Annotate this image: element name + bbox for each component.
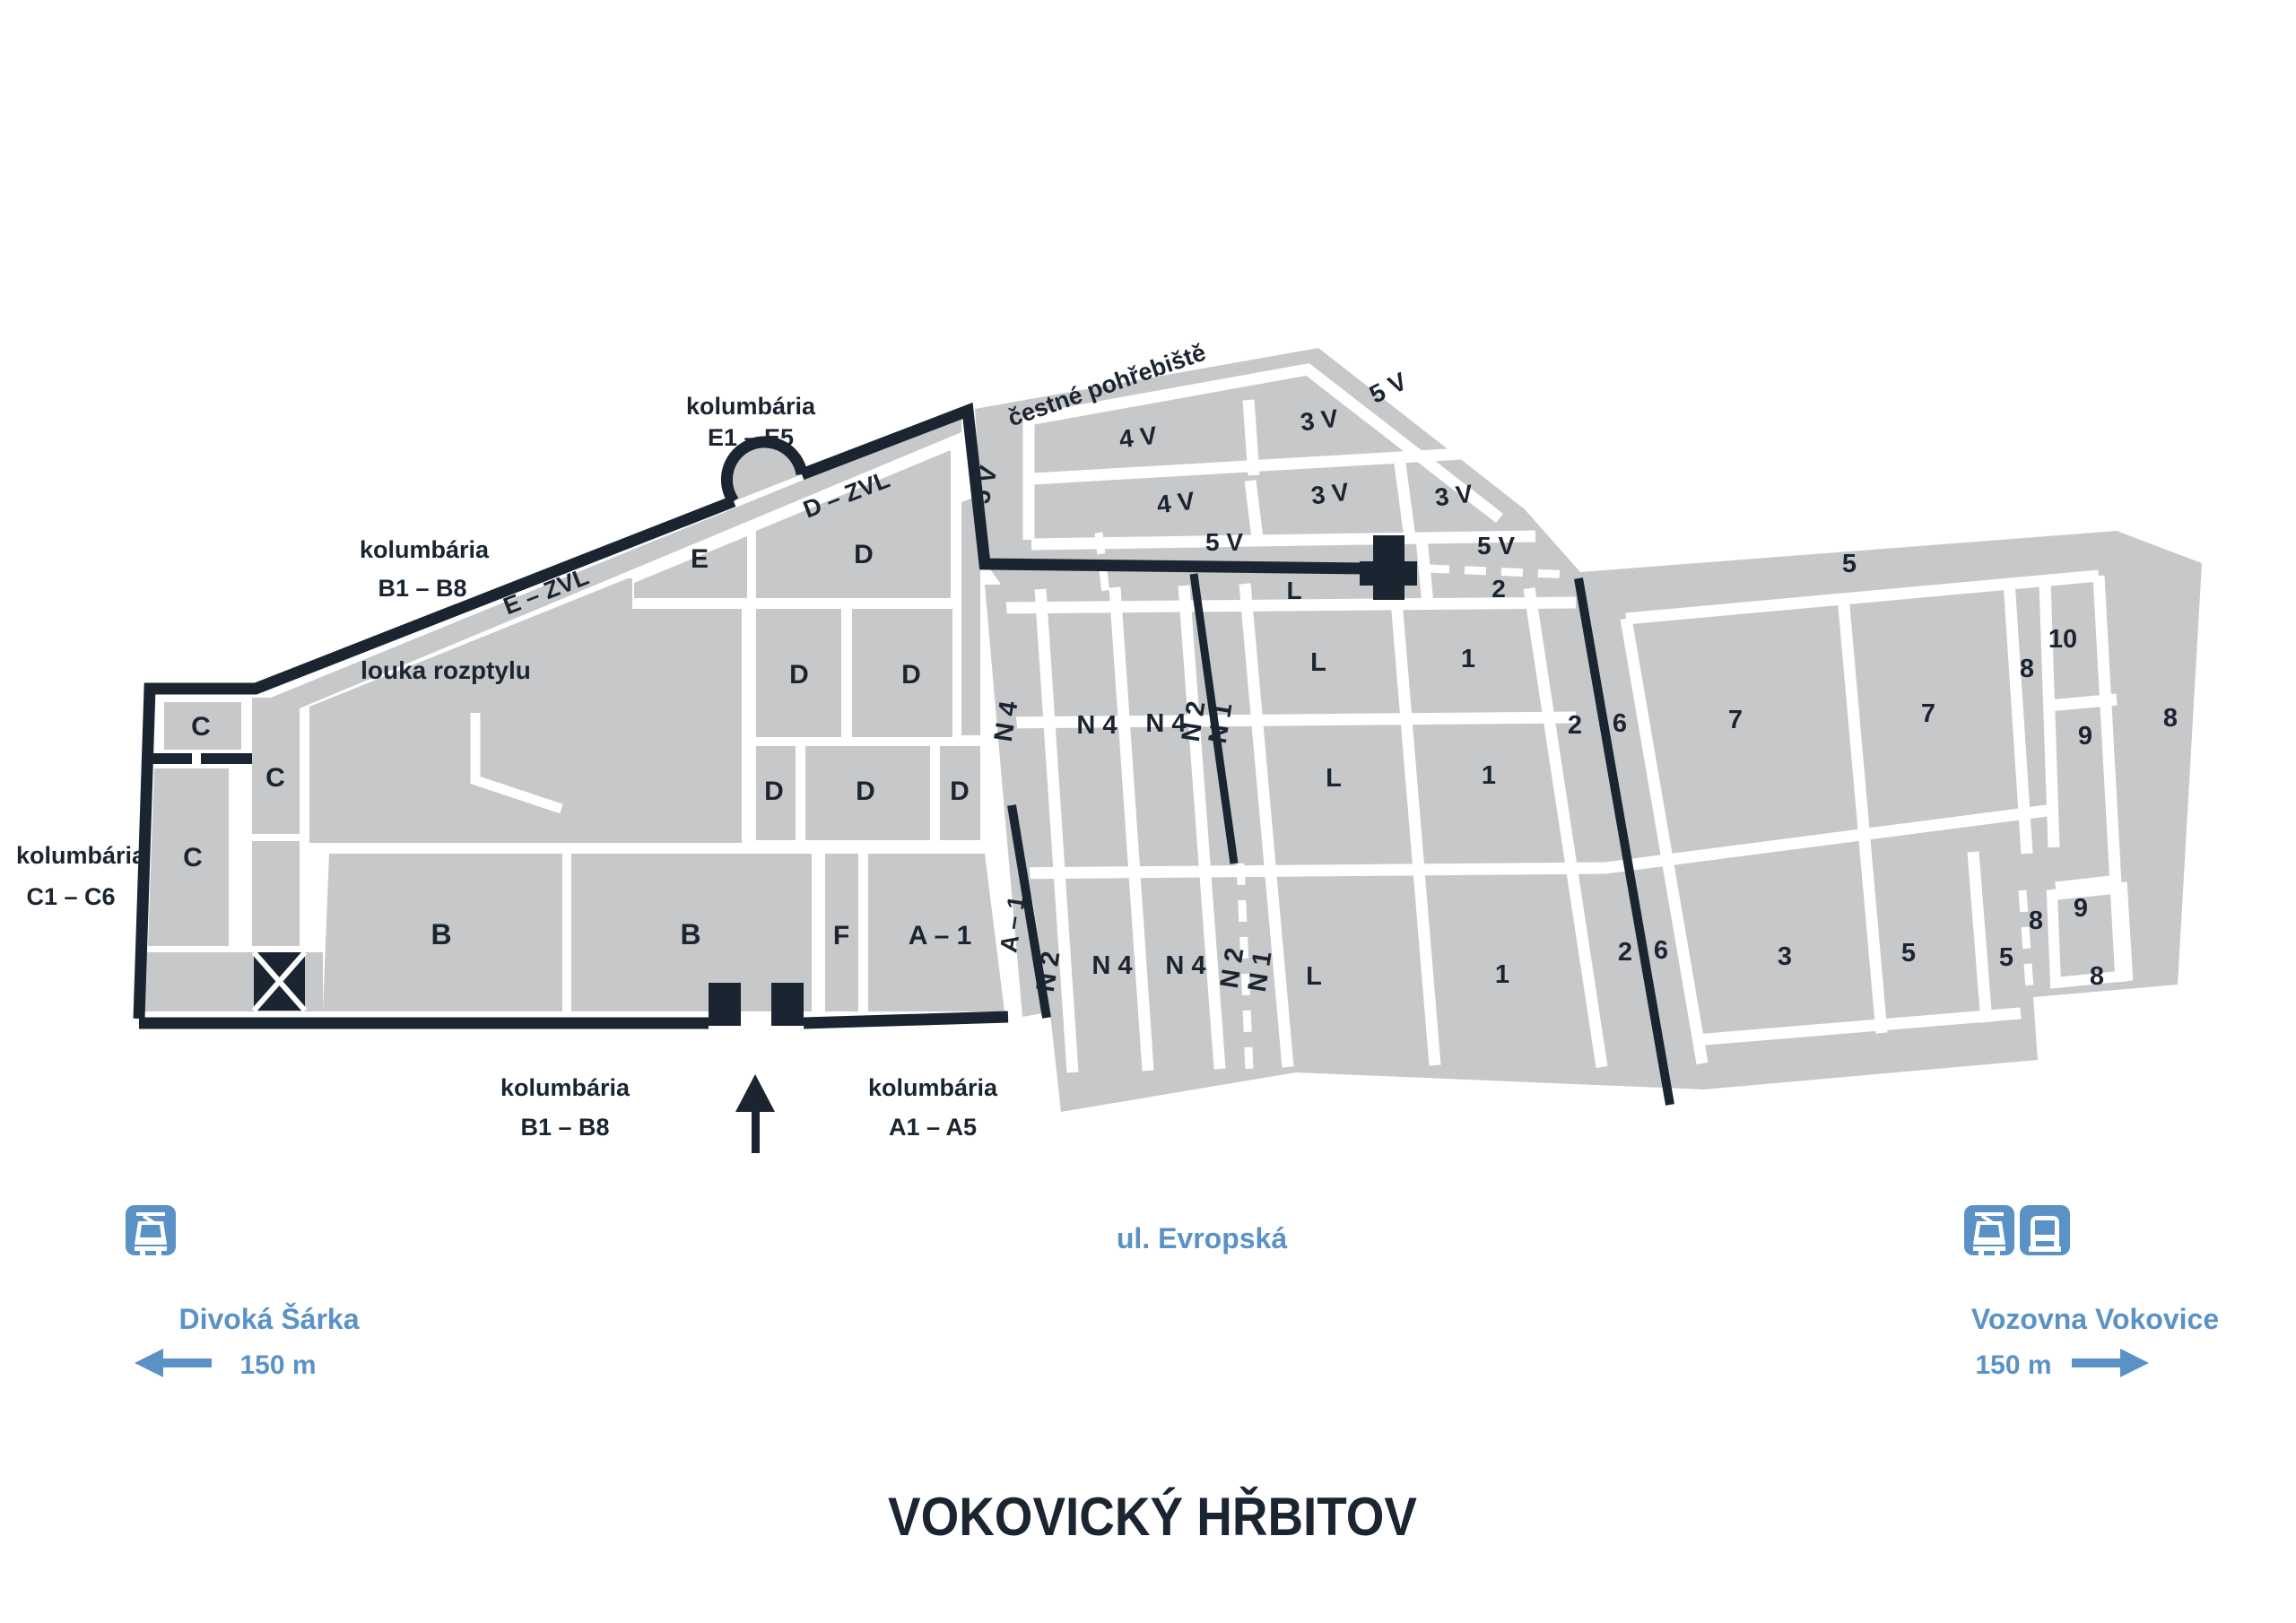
cemetery-map-page: C C C B B F A – 1 E D D D D D D louka ro… [0, 0, 2296, 1623]
label-up-6: 6 [1613, 709, 1627, 738]
label-5v-right: 5 V [1477, 532, 1515, 560]
footer: ul. Evropská Divoká Šárka 150 m [126, 1205, 2219, 1547]
page-title: VOKOVICKÝ HŘBITOV [888, 1487, 1417, 1547]
label-3v-lower: 3 V [1309, 478, 1351, 510]
label-row3-l: L [1306, 962, 1322, 991]
label-d-mid-l: D [789, 660, 809, 690]
gate-x-icon [254, 952, 305, 1011]
label-lo-2: 2 [1618, 938, 1632, 967]
street-label: ul. Evropská [1117, 1222, 1288, 1254]
entrance-post-left [709, 983, 741, 1026]
stop-name-right: Vozovna Vokovice [1971, 1303, 2219, 1335]
label-c-mid: C [265, 763, 285, 793]
louka-area [309, 578, 742, 843]
label-9-up: 9 [2078, 722, 2092, 751]
block-c-mid-lower [252, 841, 300, 946]
label-kolumbaria-bbot-1: kolumbária [500, 1074, 631, 1101]
label-b1: B [430, 918, 451, 950]
label-kolumbaria-btop-2: B1 – B8 [378, 575, 466, 602]
label-8-right: 8 [2163, 704, 2178, 733]
label-d-bot-3: D [950, 777, 970, 806]
label-kolumbaria-a-1: kolumbária [868, 1074, 998, 1101]
label-d-top: D [854, 540, 874, 569]
label-kolumbaria-a-2: A1 – A5 [889, 1114, 977, 1141]
label-kolumbaria-e-1: kolumbária [686, 393, 816, 420]
label-9-lo: 9 [2074, 894, 2088, 923]
entrance-arrow-icon [735, 1074, 775, 1153]
label-kolumbaria-c-2: C1 – C6 [26, 883, 115, 910]
label-7a: 7 [1728, 706, 1743, 734]
label-5b: 5 [1999, 943, 2013, 972]
stop-name-left: Divoká Šárka [178, 1303, 359, 1335]
label-col-8: 8 [2020, 655, 2034, 683]
entrance-post-right [771, 983, 804, 1026]
label-5v-mid: 5 V [1205, 528, 1243, 556]
label-3v-upper: 3 V [1299, 404, 1340, 437]
legend-right: Vozovna Vokovice 150 m [1964, 1205, 2219, 1380]
legend-left: Divoká Šárka 150 m [126, 1205, 360, 1380]
label-3: 3 [1778, 942, 1792, 971]
label-7b: 7 [1921, 699, 1935, 728]
arrow-right-icon [2072, 1349, 2149, 1377]
label-corridor-l: L [1286, 577, 1301, 604]
map-canvas: C C C B B F A – 1 E D D D D D D louka ro… [0, 0, 2296, 1623]
label-top-5: 5 [1842, 550, 1857, 578]
label-row3-1: 1 [1495, 960, 1509, 989]
label-kolumbaria-e-2: E1 – E5 [708, 424, 794, 451]
old-part [143, 415, 1042, 1017]
label-d-mid-r: D [901, 660, 921, 690]
label-row2-l: L [1326, 764, 1342, 793]
label-row1-1: 1 [1461, 645, 1475, 673]
label-3v-right: 3 V [1433, 480, 1474, 512]
label-row2-1: 1 [1482, 761, 1496, 790]
boundary-south [139, 1017, 1008, 1023]
label-row1-l: L [1310, 648, 1326, 677]
label-f: F [833, 921, 849, 950]
arrow-left-icon [135, 1349, 212, 1377]
label-5a: 5 [1901, 939, 1916, 968]
label-c-tall: C [183, 843, 203, 872]
label-e: E [691, 544, 709, 574]
label-a1-block: A – 1 [909, 921, 972, 950]
label-kolumbaria-btop-1: kolumbária [360, 536, 490, 563]
label-n4-lo2: N 4 [1165, 951, 1205, 980]
label-4v-upper: 4 V [1118, 421, 1159, 454]
label-kolumbaria-bbot-2: B1 – B8 [520, 1114, 609, 1141]
label-up-2: 2 [1568, 711, 1582, 740]
distance-left: 150 m [239, 1350, 316, 1380]
label-d-bot-2: D [856, 777, 875, 806]
tram-icon-right [1964, 1205, 2014, 1257]
label-4v-lower: 4 V [1155, 487, 1196, 519]
label-louka: louka rozptylu [361, 656, 531, 684]
label-8-bottom: 8 [2090, 962, 2104, 991]
label-d-bot-1: D [764, 777, 784, 806]
label-n4-lo1: N 4 [1091, 951, 1132, 980]
label-8-dash: 8 [2029, 907, 2043, 935]
label-corridor-2: 2 [1492, 575, 1506, 603]
label-c-top: C [191, 712, 211, 742]
label-b2: B [680, 918, 700, 950]
tram-icon [126, 1205, 176, 1257]
label-10: 10 [2048, 625, 2077, 654]
label-lo-6: 6 [1654, 936, 1668, 965]
bus-icon [2020, 1205, 2070, 1255]
label-kolumbaria-c-1: kolumbária [16, 842, 146, 869]
distance-right: 150 m [1975, 1350, 2051, 1380]
label-n4-up1: N 4 [1076, 711, 1117, 740]
